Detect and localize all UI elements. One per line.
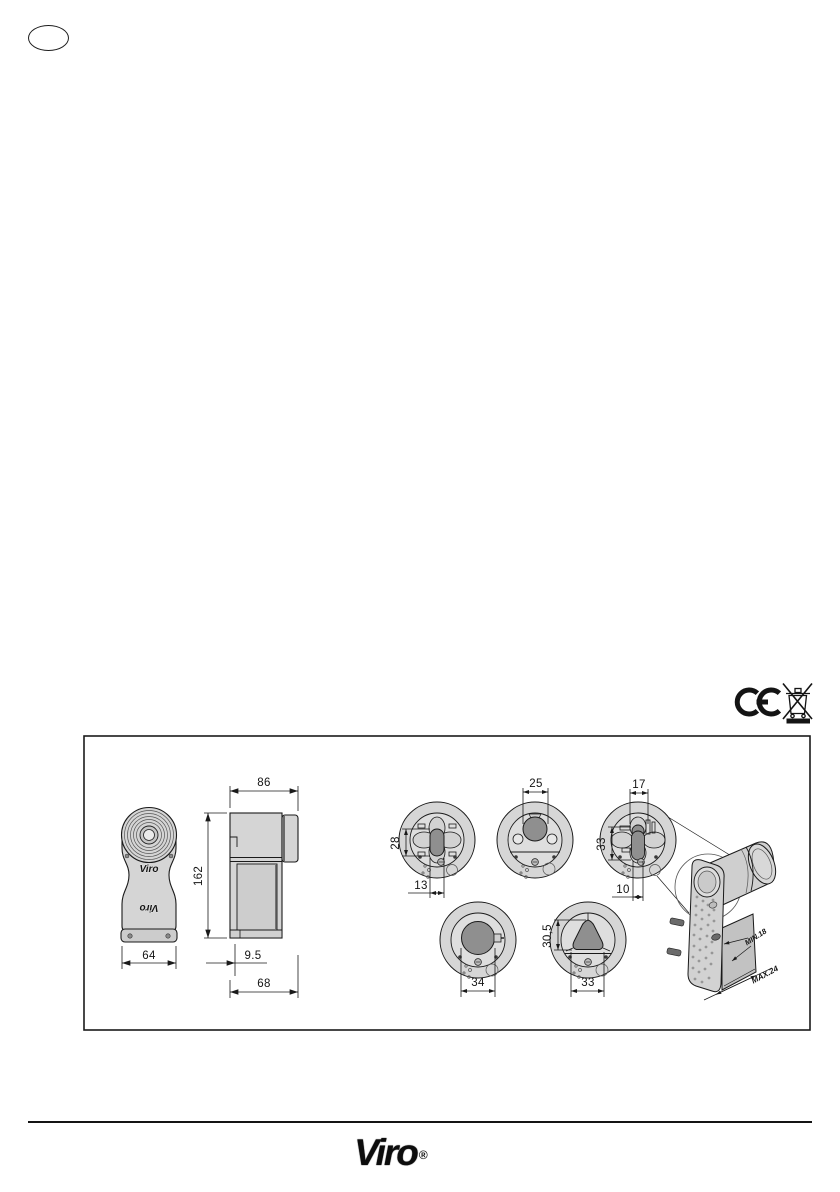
footer-brand: Viro® bbox=[0, 1132, 811, 1174]
ce-mark-icon bbox=[737, 690, 779, 714]
manual-page: Viro Viro 64 bbox=[0, 0, 840, 1192]
dim-plate5-height: 30,5 bbox=[542, 924, 554, 948]
dim-plate2-width: 25 bbox=[529, 778, 542, 790]
dim-plate3-top-width: 17 bbox=[632, 779, 645, 791]
weee-bin-icon bbox=[783, 684, 812, 724]
dim-plate1-height: 28 bbox=[390, 836, 402, 849]
dim-side-top-width: 86 bbox=[257, 777, 270, 789]
dim-plate5-width: 33 bbox=[581, 977, 594, 989]
dim-plate3-bottom-width: 10 bbox=[616, 884, 629, 896]
technical-drawing-layer: Viro Viro 64 bbox=[0, 0, 840, 1192]
registered-mark: ® bbox=[419, 1148, 428, 1162]
viro-logo: Viro bbox=[354, 1132, 417, 1173]
dim-side-bottom-width: 68 bbox=[257, 978, 270, 990]
dim-plate3-height: 33 bbox=[596, 837, 608, 850]
dim-plate4-width: 34 bbox=[471, 977, 485, 989]
dim-side-offset: 9.5 bbox=[245, 950, 262, 962]
dim-side-height: 162 bbox=[193, 866, 205, 886]
dim-plate1-width: 13 bbox=[414, 880, 427, 892]
dim-front-width: 64 bbox=[142, 950, 156, 962]
front-logo-inverted: Viro bbox=[139, 902, 158, 913]
footer-divider bbox=[28, 1121, 812, 1123]
front-logo: Viro bbox=[139, 864, 158, 875]
